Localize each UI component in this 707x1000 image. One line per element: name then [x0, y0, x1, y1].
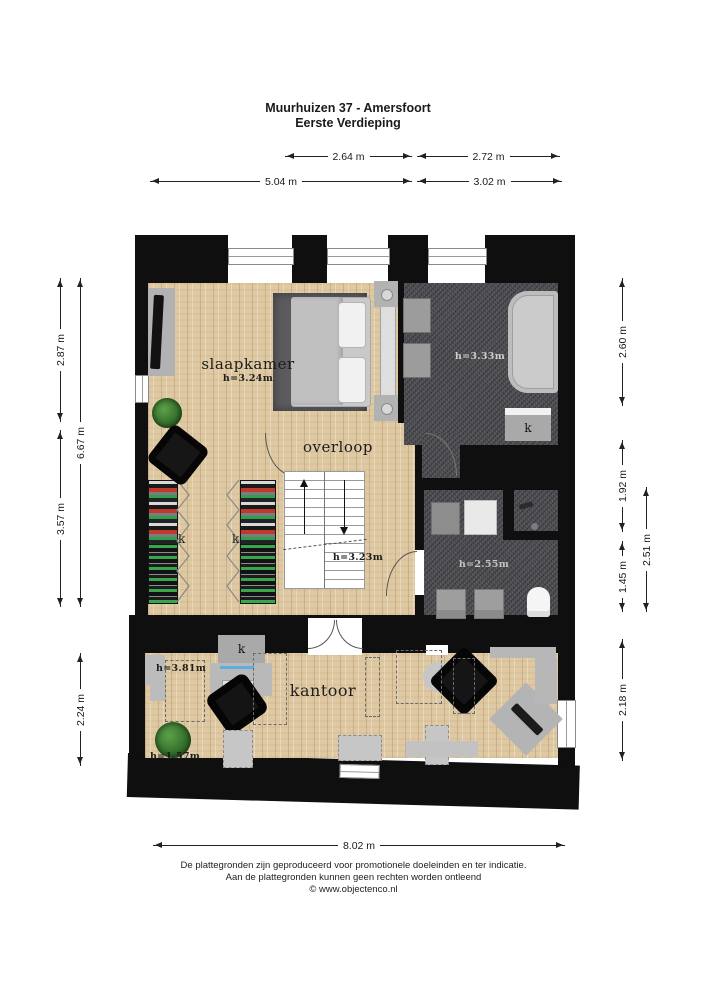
label-kantoor: kantoor: [243, 681, 403, 700]
staircase: [285, 472, 364, 588]
dim-top-5_04: 5.04 m: [150, 181, 412, 182]
label-kantoor-height-back: h=3.81m: [156, 663, 216, 674]
wall-shower-inner-v: [503, 478, 514, 538]
closet-shelf: [505, 408, 551, 415]
window-right-kantoor: [557, 700, 576, 748]
wardrobe-right-shoes: [240, 544, 276, 604]
nightstand-bottom: [374, 395, 398, 421]
wall-top-pier-2: [292, 235, 327, 283]
page-title: Muurhuizen 37 - Amersfoort: [148, 101, 548, 115]
dim-top-3_02: 3.02 m: [417, 181, 562, 182]
dim-left-2_87: 2.87 m: [60, 278, 61, 422]
floor-mat-1: [223, 730, 253, 768]
window-top-1: [228, 248, 294, 265]
dim-bottom-8_02: 8.02 m: [153, 845, 565, 846]
wall-top-pier-1: [140, 235, 228, 283]
wardrobe-left-clothes: [148, 480, 178, 546]
copyright: © www.objectenco.nl: [0, 884, 707, 895]
toilet: [527, 587, 550, 617]
pillow-bottom: [338, 357, 366, 403]
stairs-arrow-down-icon: [340, 527, 348, 539]
laptop-icon: [220, 666, 254, 669]
dim-top-2_64: 2.64 m: [285, 156, 412, 157]
label-closet-left: k: [178, 532, 185, 546]
stairs-arrow-up-icon: [300, 475, 308, 487]
wardrobe-right-clothes: [240, 480, 276, 546]
bathroom-cabinet-2: [403, 343, 431, 378]
wall-top-pier-4: [485, 235, 560, 283]
closet-badkamer: k: [505, 415, 551, 441]
dim-right-1_92: 1.92 m: [622, 440, 623, 532]
nightstand-top: [374, 281, 398, 307]
washer: [431, 502, 460, 535]
label-closet-right: k: [232, 532, 239, 546]
window-top-3: [428, 248, 487, 265]
appliance-2: [474, 589, 504, 619]
dim-right-2_18: 2.18 m: [622, 639, 623, 761]
stairs-arrow-up-line: [304, 482, 305, 534]
label-kantoor-height-front: h=1.57m: [150, 751, 210, 762]
label-badkamer-height: h=3.33m: [440, 351, 520, 362]
floor-mat-2: [338, 735, 382, 761]
dryer: [464, 500, 497, 535]
lamp-icon: [381, 403, 393, 415]
dim-left-2_24: 2.24 m: [80, 653, 81, 766]
dim-left-6_67: 6.67 m: [80, 278, 81, 607]
wall-shower-inner-h: [503, 531, 558, 540]
lamp-icon: [381, 289, 393, 301]
dim-left-3_57: 3.57 m: [60, 430, 61, 607]
stairs-divider: [324, 472, 325, 588]
window-bottom: [339, 764, 379, 779]
label-slaapkamer-height: h=3.24m: [168, 373, 328, 384]
workzone-5: [453, 658, 475, 714]
headboard: [380, 297, 396, 407]
bathtub: [508, 291, 558, 393]
desk-right: [535, 658, 557, 704]
dim-top-2_72: 2.72 m: [417, 156, 560, 157]
wardrobe-left-shoes: [148, 544, 178, 604]
label-overloop-height: h=3.23m: [320, 552, 396, 563]
disclaimer-line-2: Aan de plattegronden kunnen geen rechten…: [0, 872, 707, 883]
floorplan: k k: [128, 235, 575, 800]
disclaimer-line-1: De plattegronden zijn geproduceerd voor …: [0, 860, 707, 871]
pillow-top: [338, 302, 366, 348]
bathroom-cabinet-1: [403, 298, 431, 333]
label-doucheruimte-height: h=2.55m: [444, 559, 524, 570]
bed-duvet: [291, 297, 343, 405]
page-subtitle: Eerste Verdieping: [148, 116, 548, 130]
tv-icon: [510, 703, 543, 736]
window-left-bedroom: [135, 375, 149, 403]
shower-drain-icon: [531, 523, 538, 530]
window-top-2: [327, 248, 390, 265]
radiator-left: [150, 685, 166, 701]
plant-bedroom: [152, 398, 182, 428]
wall-bath-entry: [422, 478, 460, 490]
label-overloop: overloop: [278, 438, 398, 456]
dim-right-2_51: 2.51 m: [646, 487, 647, 612]
wall-top-pier-3: [388, 235, 428, 283]
stairs-arrow-down-line: [344, 480, 345, 528]
sideboard-top: [490, 647, 556, 658]
floor-mat-4: [406, 741, 478, 757]
dim-right-2_60: 2.60 m: [622, 278, 623, 406]
floorplan-page: Muurhuizen 37 - Amersfoort Eerste Verdie…: [0, 0, 707, 1000]
appliance-1: [436, 589, 466, 619]
wall-left-upper: [135, 235, 148, 620]
dim-right-1_45: 1.45 m: [622, 541, 623, 612]
label-slaapkamer: slaapkamer: [168, 355, 328, 373]
